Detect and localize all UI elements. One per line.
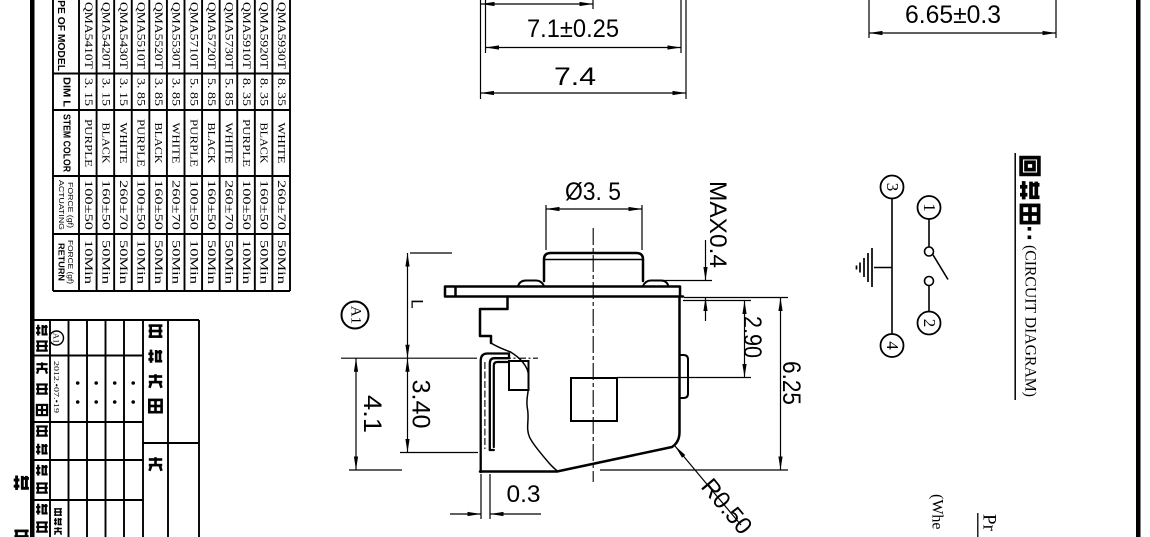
svg-text:QMA5930T: QMA5930T bbox=[275, 2, 287, 69]
svg-text:50Min: 50Min bbox=[170, 240, 182, 284]
svg-text:10Min: 10Min bbox=[240, 240, 252, 284]
svg-text:A1: A1 bbox=[348, 306, 364, 324]
svg-text:BLACK: BLACK bbox=[99, 123, 111, 164]
svg-text:3. 15: 3. 15 bbox=[99, 78, 111, 106]
svg-text:PURPLE: PURPLE bbox=[240, 119, 252, 167]
svg-text:8. 35: 8. 35 bbox=[275, 78, 287, 106]
svg-text:3.40: 3.40 bbox=[407, 380, 435, 429]
svg-text:QMA5910T: QMA5910T bbox=[240, 2, 252, 69]
svg-text:WHITE: WHITE bbox=[117, 123, 129, 164]
svg-text:8. 35: 8. 35 bbox=[240, 78, 252, 106]
svg-text:4: 4 bbox=[883, 341, 902, 350]
svg-text:6.25: 6.25 bbox=[777, 361, 805, 405]
svg-text:10Min: 10Min bbox=[82, 240, 94, 284]
svg-text:BLACK: BLACK bbox=[205, 123, 217, 164]
svg-text:2: 2 bbox=[920, 319, 939, 328]
svg-text:3: 3 bbox=[883, 183, 902, 192]
svg-text:QMA5730T: QMA5730T bbox=[222, 2, 234, 69]
svg-text:160±50: 160±50 bbox=[205, 180, 217, 230]
svg-text:QMA5420T: QMA5420T bbox=[99, 2, 111, 69]
svg-text:8. 35: 8. 35 bbox=[258, 78, 270, 106]
svg-text:RETURN: RETURN bbox=[57, 243, 67, 281]
svg-text:Pr: Pr bbox=[979, 514, 1000, 532]
svg-text:160±50: 160±50 bbox=[258, 180, 270, 230]
svg-text:QMA5510T: QMA5510T bbox=[135, 2, 147, 69]
svg-text:2012.•07.•19: 2012.•07.•19 bbox=[52, 361, 61, 413]
svg-text:PURPLE: PURPLE bbox=[187, 119, 199, 167]
svg-text:4.1: 4.1 bbox=[358, 395, 386, 433]
svg-text:L: L bbox=[408, 299, 427, 308]
svg-text:A1: A1 bbox=[52, 333, 62, 343]
svg-text:7.4: 7.4 bbox=[554, 63, 596, 91]
svg-text:3. 85: 3. 85 bbox=[152, 78, 164, 106]
svg-text:STEM COLOR: STEM COLOR bbox=[61, 114, 72, 173]
svg-text:50Min: 50Min bbox=[117, 240, 129, 284]
svg-text:260±70: 260±70 bbox=[170, 180, 182, 230]
svg-text:WHITE: WHITE bbox=[222, 123, 234, 164]
svg-text:50Min: 50Min bbox=[275, 240, 287, 284]
svg-text:3. 85: 3. 85 bbox=[135, 78, 147, 106]
svg-text:100±50: 100±50 bbox=[135, 180, 147, 230]
svg-text:Ø3. 5: Ø3. 5 bbox=[565, 178, 621, 206]
svg-text:QMA5430T: QMA5430T bbox=[117, 2, 129, 69]
svg-text:QMA5720T: QMA5720T bbox=[205, 2, 217, 69]
svg-text:2.90: 2.90 bbox=[738, 316, 766, 358]
svg-text:5. 85: 5. 85 bbox=[205, 78, 217, 106]
svg-text:160±50: 160±50 bbox=[152, 180, 164, 230]
svg-text:50Min: 50Min bbox=[205, 240, 217, 284]
svg-text:TYPE OF MODEL: TYPE OF MODEL bbox=[55, 0, 66, 71]
svg-text:0.3: 0.3 bbox=[507, 481, 541, 508]
svg-text:PURPLE: PURPLE bbox=[135, 119, 147, 167]
svg-text:R0.50: R0.50 bbox=[695, 474, 757, 537]
svg-text:QMA5520T: QMA5520T bbox=[152, 2, 164, 69]
svg-text:(Whe: (Whe bbox=[929, 494, 946, 530]
svg-text:5. 85: 5. 85 bbox=[187, 78, 199, 106]
svg-text:FORCE (gf): FORCE (gf) bbox=[66, 182, 75, 229]
svg-text:5. 85: 5. 85 bbox=[222, 78, 234, 106]
svg-text:1: 1 bbox=[920, 203, 939, 212]
svg-text:100±50: 100±50 bbox=[240, 180, 252, 230]
svg-text:260±70: 260±70 bbox=[117, 180, 129, 230]
svg-text:FORCE (gf): FORCE (gf) bbox=[66, 240, 75, 285]
svg-text:QMA5920T: QMA5920T bbox=[258, 2, 270, 69]
svg-text:6.65±0.3: 6.65±0.3 bbox=[905, 1, 1001, 29]
svg-text:3. 15: 3. 15 bbox=[117, 78, 129, 106]
svg-text:100±50: 100±50 bbox=[187, 180, 199, 230]
svg-text:ACTUATING: ACTUATING bbox=[57, 180, 66, 230]
svg-text:BLACK: BLACK bbox=[152, 123, 164, 164]
svg-text:100±50: 100±50 bbox=[82, 180, 94, 230]
svg-text:3. 85: 3. 85 bbox=[170, 78, 182, 106]
svg-text:3. 15: 3. 15 bbox=[82, 78, 94, 106]
svg-text:10Min: 10Min bbox=[135, 240, 147, 284]
svg-text:QMA5410T: QMA5410T bbox=[82, 2, 94, 69]
svg-text:PURPLE: PURPLE bbox=[82, 119, 94, 167]
svg-text:QMA5530T: QMA5530T bbox=[170, 2, 182, 69]
svg-text:WHITE: WHITE bbox=[170, 123, 182, 164]
svg-text:DIM L: DIM L bbox=[61, 77, 72, 107]
svg-text:10Min: 10Min bbox=[187, 240, 199, 284]
svg-text:QMA5710T: QMA5710T bbox=[187, 2, 199, 69]
svg-text:7.1±0.25: 7.1±0.25 bbox=[527, 15, 619, 43]
svg-text:50Min: 50Min bbox=[99, 240, 111, 284]
svg-text:BLACK: BLACK bbox=[258, 123, 270, 164]
svg-text:160±50: 160±50 bbox=[99, 180, 111, 230]
svg-text:50Min: 50Min bbox=[222, 240, 234, 284]
svg-text:MAX0.4: MAX0.4 bbox=[704, 181, 731, 268]
svg-text:(CIRCUIT DIAGRAM): (CIRCUIT DIAGRAM) bbox=[1022, 245, 1039, 397]
svg-text:50Min: 50Min bbox=[152, 240, 164, 284]
svg-text:50Min: 50Min bbox=[258, 240, 270, 284]
svg-text:260±70: 260±70 bbox=[222, 180, 234, 230]
svg-text:WHITE: WHITE bbox=[275, 123, 287, 164]
svg-text:260±70: 260±70 bbox=[275, 180, 287, 230]
